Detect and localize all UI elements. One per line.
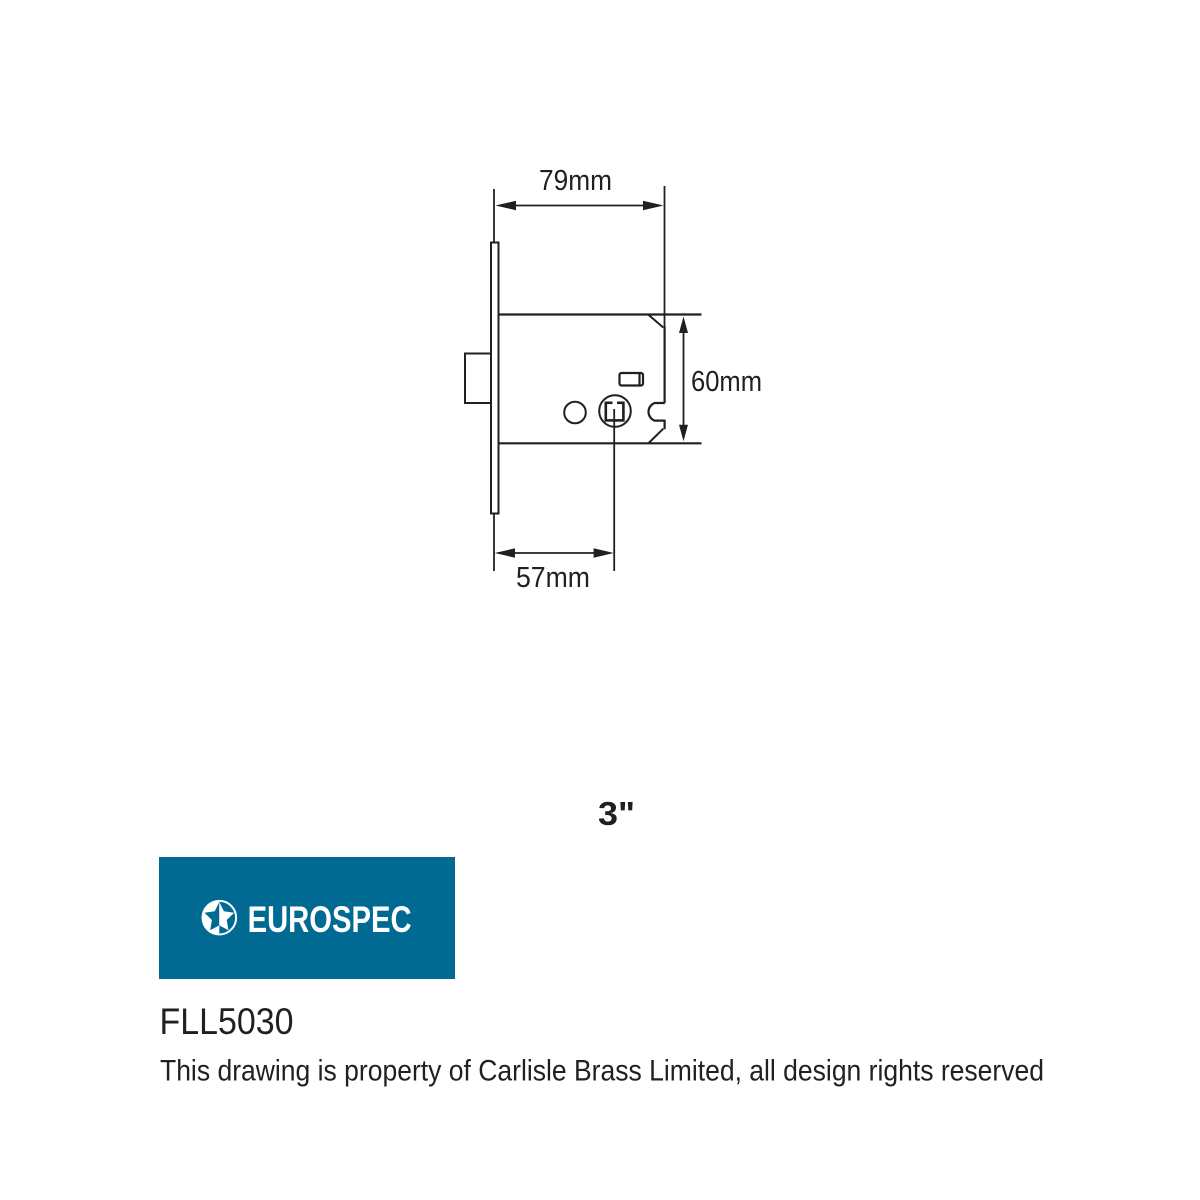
svg-text:FLL5030: FLL5030 bbox=[160, 1001, 294, 1042]
svg-text:This drawing is property of Ca: This drawing is property of Carlisle Bra… bbox=[160, 1055, 1044, 1088]
svg-text:60mm: 60mm bbox=[691, 366, 762, 398]
svg-text:3": 3" bbox=[598, 795, 635, 832]
svg-text:EUROSPEC: EUROSPEC bbox=[248, 898, 412, 940]
svg-text:79mm: 79mm bbox=[539, 165, 612, 197]
svg-text:57mm: 57mm bbox=[516, 562, 590, 594]
